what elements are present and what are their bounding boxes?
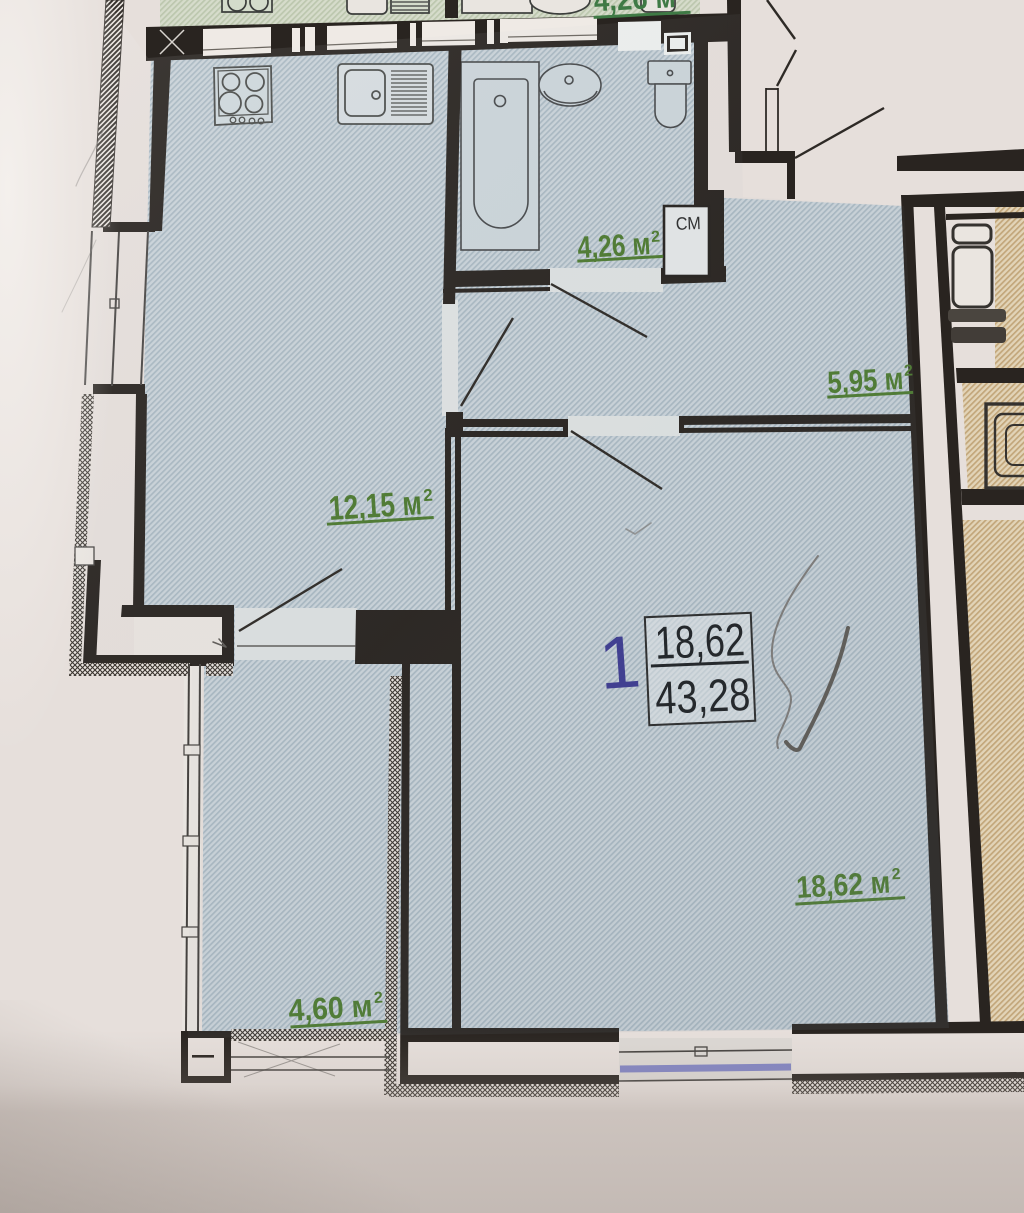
svg-text:2: 2 xyxy=(677,0,687,4)
